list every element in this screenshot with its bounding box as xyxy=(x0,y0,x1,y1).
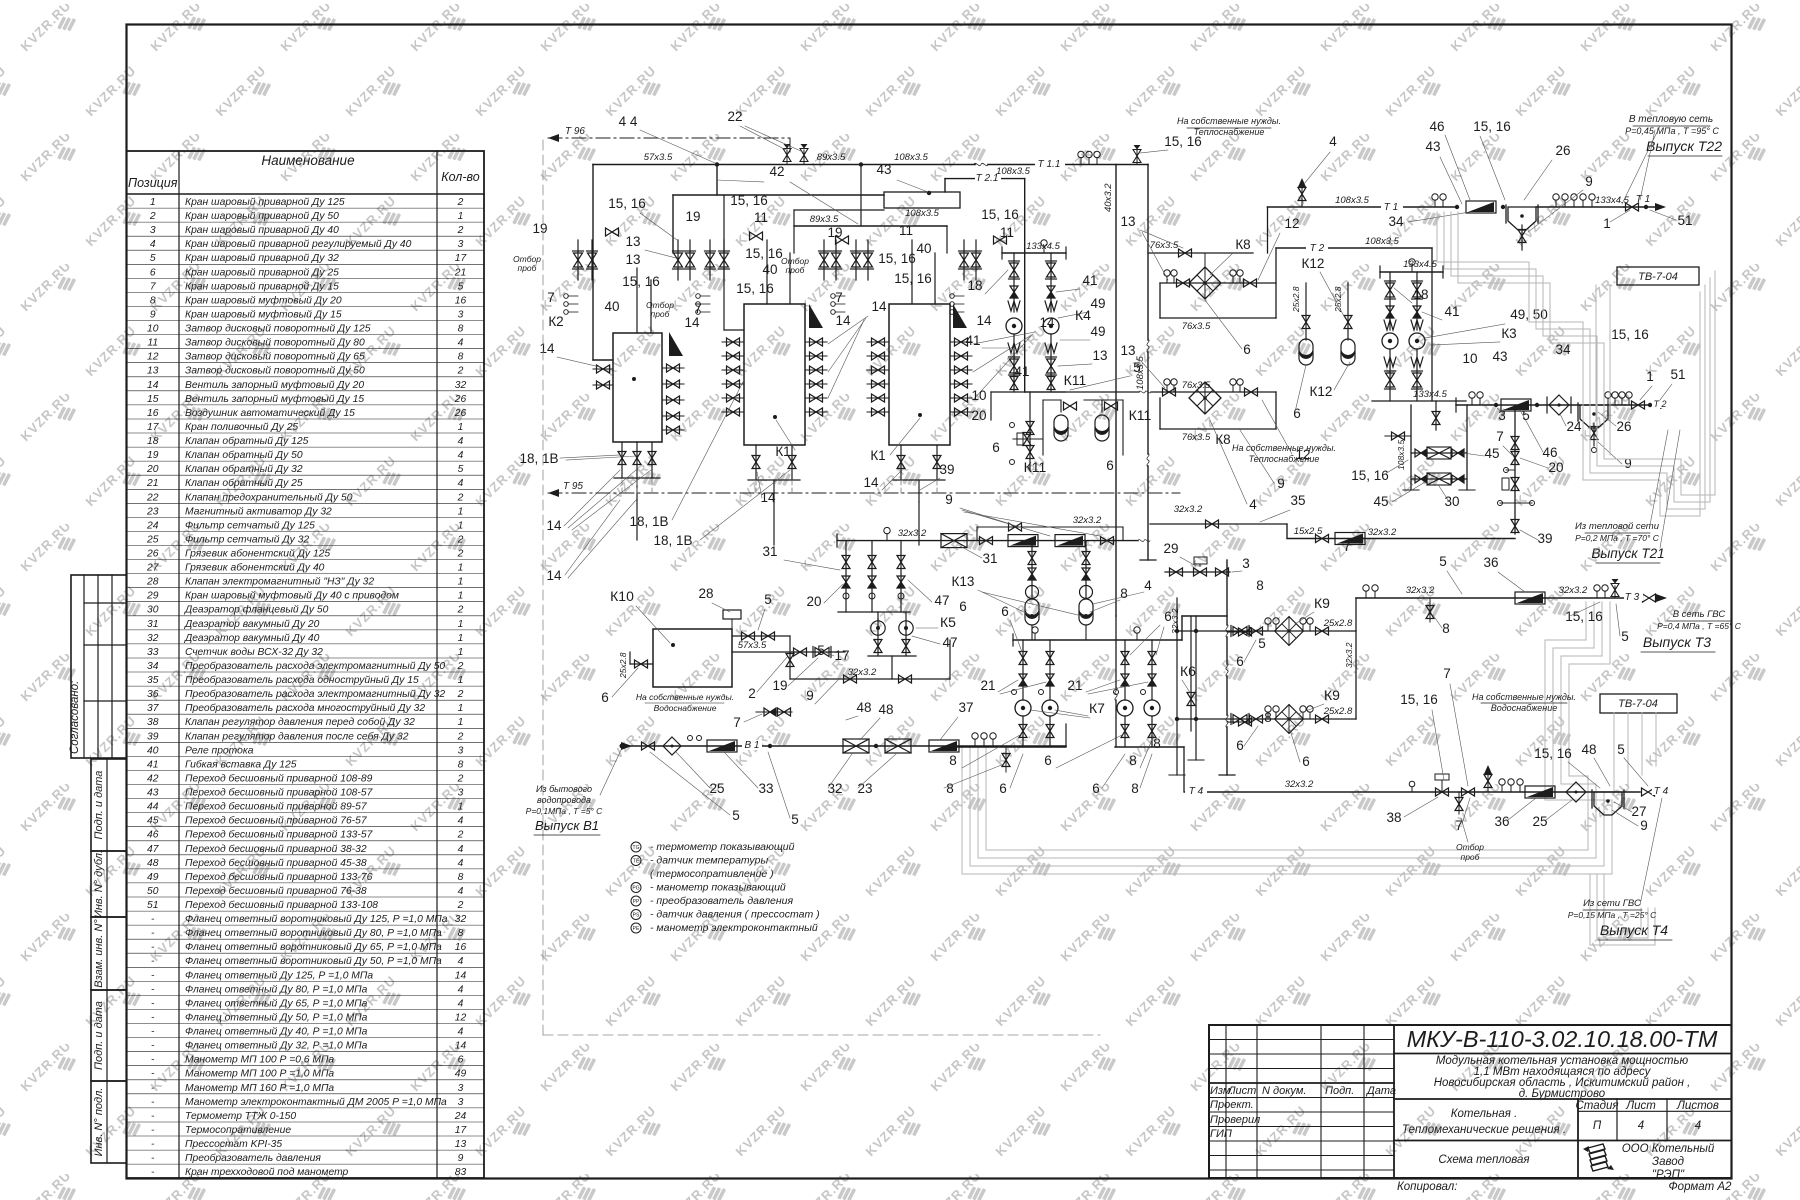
svg-text:Термосопративление: Термосопративление xyxy=(185,1125,291,1136)
svg-text:11: 11 xyxy=(1000,225,1014,240)
svg-text:19: 19 xyxy=(532,221,547,236)
svg-text:4: 4 xyxy=(458,436,464,447)
svg-text:12: 12 xyxy=(1284,216,1299,231)
svg-text:На собственные нужды.: На собственные нужды. xyxy=(1232,443,1336,453)
svg-text:31: 31 xyxy=(982,551,997,566)
svg-text:28: 28 xyxy=(698,586,713,601)
svg-text:К7: К7 xyxy=(1089,700,1105,716)
svg-text:19: 19 xyxy=(685,209,700,224)
svg-text:Манометр электроконтактный ДМ: Манометр электроконтактный ДМ 2005 Р =1,… xyxy=(185,1097,447,1108)
svg-text:5: 5 xyxy=(1258,636,1266,651)
svg-text:4: 4 xyxy=(458,338,464,349)
svg-text:12: 12 xyxy=(455,1013,467,1024)
svg-text:23: 23 xyxy=(146,506,159,517)
svg-text:7: 7 xyxy=(1343,539,1351,554)
svg-text:32х3.2: 32х3.2 xyxy=(1559,585,1588,596)
svg-text:32х3.2: 32х3.2 xyxy=(1285,779,1314,790)
svg-text:15, 16: 15, 16 xyxy=(894,271,932,286)
svg-text:5: 5 xyxy=(1439,554,1447,569)
svg-text:8: 8 xyxy=(458,324,464,335)
svg-text:Реле протока: Реле протока xyxy=(185,745,254,756)
svg-text:Кран шаровый приварной Ду 32: Кран шаровый приварной Ду 32 xyxy=(185,253,339,264)
svg-text:К11: К11 xyxy=(1129,407,1152,423)
svg-text:-: - xyxy=(151,1013,155,1024)
svg-text:15х2.5: 15х2.5 xyxy=(1294,526,1323,537)
svg-text:Манометр МП 100 Р =1,0 МПа: Манометр МП 100 Р =1,0 МПа xyxy=(185,1069,334,1080)
svg-text:ООО Котельный: ООО Котельный xyxy=(1622,1143,1715,1155)
svg-text:Манометр МП 160 Р =1,0 МПа: Манометр МП 160 Р =1,0 МПа xyxy=(185,1083,334,1094)
svg-text:32: 32 xyxy=(455,380,467,391)
svg-text:Клапан электромагнитный "НЗ": Клапан электромагнитный "НЗ" Ду 32 xyxy=(185,577,374,588)
svg-text:8: 8 xyxy=(458,352,464,363)
svg-text:4: 4 xyxy=(1144,578,1152,593)
svg-text:Водоснабжение: Водоснабжение xyxy=(1491,703,1558,713)
svg-text:17: 17 xyxy=(455,1125,468,1136)
svg-text:32х3.2: 32х3.2 xyxy=(848,667,877,678)
svg-text:8: 8 xyxy=(458,759,464,770)
svg-text:д. Бурмистрово: д. Бурмистрово xyxy=(1519,1088,1606,1100)
svg-text:41: 41 xyxy=(1014,364,1029,379)
svg-text:1: 1 xyxy=(458,633,464,644)
svg-text:39: 39 xyxy=(147,731,159,742)
svg-text:Р=0,15 МПа , Т =25° С: Р=0,15 МПа , Т =25° С xyxy=(1568,910,1657,920)
svg-text:14: 14 xyxy=(147,380,159,391)
svg-text:МКУ-В-110-3.02.10.18.00-ТМ: МКУ-В-110-3.02.10.18.00-ТМ xyxy=(1407,1026,1718,1052)
svg-text:26: 26 xyxy=(146,549,159,560)
svg-text:- манометр показывающий: - манометр показывающий xyxy=(650,882,786,894)
svg-text:21: 21 xyxy=(1067,678,1082,693)
svg-text:Р=0,4 МПа , Т =65° С: Р=0,4 МПа , Т =65° С xyxy=(1657,621,1742,631)
svg-text:2: 2 xyxy=(457,830,464,841)
svg-text:1: 1 xyxy=(458,675,464,686)
svg-text:25х2.8: 25х2.8 xyxy=(1333,286,1343,313)
svg-text:Инв. N° подл.: Инв. N° подл. xyxy=(93,1088,105,1157)
svg-text:33: 33 xyxy=(758,781,773,796)
svg-text:PG: PG xyxy=(632,886,639,892)
svg-text:2: 2 xyxy=(457,225,464,236)
svg-text:1: 1 xyxy=(458,520,464,531)
svg-text:К5: К5 xyxy=(940,614,956,630)
svg-text:Переход бесшовный приварной 1: Переход бесшовный приварной 133-57 xyxy=(185,829,374,841)
svg-text:2: 2 xyxy=(457,549,464,560)
svg-text:Воздушник автоматический Ду 15: Воздушник автоматический Ду 15 xyxy=(185,408,355,419)
svg-text:2: 2 xyxy=(457,605,464,616)
svg-text:28: 28 xyxy=(146,577,159,588)
svg-text:25х2.8: 25х2.8 xyxy=(1323,706,1353,717)
svg-text:водопровода: водопровода xyxy=(537,795,591,805)
svg-text:5: 5 xyxy=(458,464,464,475)
svg-text:Преобразователь расхода одност: Преобразователь расхода одноструйный Ду … xyxy=(185,674,419,686)
svg-text:Манометр МП 100 Р =0,6 МПа: Манометр МП 100 Р =0,6 МПа xyxy=(185,1055,334,1066)
svg-text:18: 18 xyxy=(147,436,159,447)
svg-text:18: 18 xyxy=(1413,287,1428,302)
svg-text:24: 24 xyxy=(454,1111,467,1122)
svg-text:4: 4 xyxy=(458,858,464,869)
svg-text:Т 1: Т 1 xyxy=(1384,202,1398,213)
svg-text:5: 5 xyxy=(764,592,772,607)
svg-text:проб: проб xyxy=(651,309,671,319)
svg-text:К13: К13 xyxy=(952,574,975,589)
svg-text:4: 4 xyxy=(458,1027,464,1038)
svg-text:Клапан обратный Ду 25: Клапан обратный Ду 25 xyxy=(185,477,303,489)
svg-text:-: - xyxy=(151,942,155,953)
svg-text:26: 26 xyxy=(1555,143,1570,158)
svg-text:проб: проб xyxy=(1461,852,1481,862)
svg-text:Переход бесшовный приварной 3: Переход бесшовный приварной 38-32 xyxy=(185,843,367,855)
svg-text:41: 41 xyxy=(1444,304,1459,319)
svg-text:Преобразователь расхода многос: Преобразователь расхода многоструйный Ду… xyxy=(185,702,425,714)
svg-text:Фланец ответный Ду 80, Р =1,0: Фланец ответный Ду 80, Р =1,0 МПа xyxy=(185,984,368,995)
svg-text:6: 6 xyxy=(1164,609,1172,624)
svg-text:76х3.5: 76х3.5 xyxy=(1182,432,1211,443)
svg-text:43: 43 xyxy=(1492,349,1507,364)
svg-text:Фланец ответный воротниковый Д: Фланец ответный воротниковый Ду 125, Р =… xyxy=(185,914,448,925)
svg-text:-: - xyxy=(151,984,155,995)
svg-text:32х3.2: 32х3.2 xyxy=(1406,585,1435,596)
svg-text:43: 43 xyxy=(876,162,891,177)
svg-text:К10: К10 xyxy=(610,588,634,604)
svg-text:1: 1 xyxy=(458,717,464,728)
svg-text:ТЕ: ТЕ xyxy=(633,859,640,865)
svg-text:49: 49 xyxy=(1090,296,1105,311)
svg-text:31: 31 xyxy=(762,544,777,559)
svg-text:39: 39 xyxy=(1537,531,1552,546)
svg-text:Фланец ответный Ду 65, Р =1,0: Фланец ответный Ду 65, Р =1,0 МПа xyxy=(185,998,368,1009)
svg-text:Вентиль запорный муфтовый Ду: Вентиль запорный муфтовый Ду 20 xyxy=(185,379,364,391)
svg-text:14: 14 xyxy=(835,313,851,328)
svg-text:48: 48 xyxy=(147,858,159,869)
svg-text:6: 6 xyxy=(992,440,1000,455)
svg-text:1: 1 xyxy=(1603,216,1611,231)
svg-text:Из сети ГВС: Из сети ГВС xyxy=(1583,898,1641,909)
svg-text:Т 2: Т 2 xyxy=(1310,243,1325,254)
svg-text:12: 12 xyxy=(147,352,159,363)
svg-text:11: 11 xyxy=(899,223,913,238)
svg-text:Фланец ответный воротниковый Д: Фланец ответный воротниковый Ду 80, Р =1… xyxy=(185,928,442,939)
svg-text:32: 32 xyxy=(147,633,159,644)
svg-text:15, 16: 15, 16 xyxy=(1351,468,1389,483)
svg-text:-: - xyxy=(151,970,155,981)
svg-text:ТВ-7-04: ТВ-7-04 xyxy=(1638,271,1678,283)
svg-text:Котельная .: Котельная . xyxy=(1451,1108,1518,1120)
svg-text:Схема тепловая: Схема тепловая xyxy=(1438,1154,1529,1166)
svg-text:76х3.5: 76х3.5 xyxy=(1150,240,1179,251)
svg-text:Согласовано:: Согласовано: xyxy=(69,681,81,754)
svg-text:7: 7 xyxy=(835,290,843,305)
svg-text:46: 46 xyxy=(1542,445,1557,460)
svg-text:9: 9 xyxy=(806,688,814,703)
svg-text:14: 14 xyxy=(863,475,879,490)
svg-text:9: 9 xyxy=(1640,818,1648,833)
svg-text:1: 1 xyxy=(458,577,464,588)
svg-text:Кол-во: Кол-во xyxy=(441,170,480,184)
svg-text:Клапан предохранительный Ду 50: Клапан предохранительный Ду 50 xyxy=(185,492,353,503)
svg-text:42: 42 xyxy=(769,164,784,179)
svg-text:Р=0,45 МПа , Т =95° С: Р=0,45 МПа , Т =95° С xyxy=(1625,126,1719,136)
svg-text:57х3.5: 57х3.5 xyxy=(644,152,673,163)
svg-text:108х3.5: 108х3.5 xyxy=(1365,236,1400,247)
svg-text:проб: проб xyxy=(786,265,806,275)
svg-text:8: 8 xyxy=(949,753,957,768)
svg-text:23: 23 xyxy=(857,781,872,796)
svg-text:5: 5 xyxy=(150,253,156,264)
svg-text:15, 16: 15, 16 xyxy=(608,196,646,211)
svg-text:10: 10 xyxy=(971,388,986,403)
svg-text:15, 16: 15, 16 xyxy=(1473,119,1511,134)
svg-text:Из бытового: Из бытового xyxy=(536,784,592,794)
svg-text:Теплоснабжение: Теплоснабжение xyxy=(1249,454,1320,464)
svg-text:36: 36 xyxy=(1494,814,1509,829)
svg-text:76х3.5: 76х3.5 xyxy=(1182,321,1211,332)
svg-text:45: 45 xyxy=(1484,446,1499,461)
svg-text:18, 1В: 18, 1В xyxy=(519,451,558,466)
svg-text:1: 1 xyxy=(458,802,464,813)
svg-text:25: 25 xyxy=(1532,814,1547,829)
svg-text:Магнитный активатор Ду 32: Магнитный активатор Ду 32 xyxy=(185,506,332,517)
svg-text:-: - xyxy=(151,1069,155,1080)
svg-text:3: 3 xyxy=(458,788,464,799)
svg-text:76х3.5: 76х3.5 xyxy=(1182,380,1211,391)
svg-text:17: 17 xyxy=(834,648,849,663)
svg-text:16: 16 xyxy=(455,942,467,953)
svg-text:-: - xyxy=(151,1139,155,1150)
svg-text:Т 95: Т 95 xyxy=(563,481,583,492)
svg-text:Деаэратор вакумный Ду 20: Деаэратор вакумный Ду 20 xyxy=(184,619,320,630)
svg-text:8: 8 xyxy=(1256,578,1264,593)
svg-text:5: 5 xyxy=(1133,360,1141,375)
svg-text:К1: К1 xyxy=(775,444,790,459)
svg-text:133х4.5: 133х4.5 xyxy=(1595,195,1630,206)
svg-text:Клапан обратный Ду 50: Клапан обратный Ду 50 xyxy=(185,449,303,461)
svg-text:- датчик температуры: - датчик температуры xyxy=(650,855,769,867)
svg-text:24: 24 xyxy=(1566,419,1582,434)
svg-text:9: 9 xyxy=(1624,456,1632,471)
svg-text:Выпуск Т22: Выпуск Т22 xyxy=(1646,138,1722,154)
svg-text:13: 13 xyxy=(455,1139,467,1150)
svg-text:15, 16: 15, 16 xyxy=(730,193,768,208)
svg-text:51: 51 xyxy=(1677,213,1692,228)
svg-text:2: 2 xyxy=(457,661,464,672)
svg-text:50: 50 xyxy=(147,886,159,897)
svg-text:21: 21 xyxy=(454,267,466,278)
svg-text:32х3.2: 32х3.2 xyxy=(898,528,927,539)
svg-text:Кран шаровый приварной Ду 15: Кран шаровый приварной Ду 15 xyxy=(185,281,339,292)
svg-text:2: 2 xyxy=(457,774,464,785)
svg-text:7: 7 xyxy=(733,715,741,730)
svg-text:39: 39 xyxy=(939,462,954,477)
svg-text:29: 29 xyxy=(1163,541,1178,556)
svg-text:Фланец ответный воротниковый Д: Фланец ответный воротниковый Ду 50, Р =1… xyxy=(185,956,442,967)
svg-text:6: 6 xyxy=(1001,604,1009,619)
svg-text:Завод: Завод xyxy=(1652,1156,1684,1168)
svg-text:Фильтр сетчатый Ду 32: Фильтр сетчатый Ду 32 xyxy=(185,534,309,545)
svg-text:40: 40 xyxy=(147,745,159,756)
svg-text:30: 30 xyxy=(147,605,159,616)
svg-text:14: 14 xyxy=(546,518,562,533)
svg-text:20: 20 xyxy=(971,408,986,423)
svg-text:Кран шаровый приварной Ду 40: Кран шаровый приварной Ду 40 xyxy=(185,225,339,236)
svg-text:1: 1 xyxy=(458,422,464,433)
svg-text:Взам. инв. N°: Взам. инв. N° xyxy=(93,919,105,988)
svg-text:ТG: ТG xyxy=(633,845,640,851)
svg-text:15: 15 xyxy=(147,394,159,405)
svg-text:14: 14 xyxy=(684,315,700,330)
svg-text:К12: К12 xyxy=(1302,256,1325,271)
svg-text:6: 6 xyxy=(1106,458,1114,473)
svg-text:14: 14 xyxy=(1039,315,1055,330)
svg-text:15, 16: 15, 16 xyxy=(1400,692,1438,707)
svg-text:4: 4 xyxy=(458,844,464,855)
svg-text:5: 5 xyxy=(732,808,740,823)
svg-text:П: П xyxy=(1593,1120,1602,1132)
svg-text:Т 2.1: Т 2.1 xyxy=(976,173,999,184)
svg-text:21: 21 xyxy=(980,678,995,693)
svg-text:83: 83 xyxy=(455,1167,467,1178)
svg-text:-: - xyxy=(151,1153,155,1164)
svg-text:9: 9 xyxy=(458,1153,464,1164)
svg-text:Формат А2: Формат А2 xyxy=(1669,1181,1733,1193)
svg-text:6: 6 xyxy=(1236,738,1244,753)
svg-text:8: 8 xyxy=(1442,621,1450,636)
svg-text:К11: К11 xyxy=(1064,372,1087,388)
svg-text:Прессостат KPI-35: Прессостат KPI-35 xyxy=(185,1139,282,1150)
svg-text:Переход бесшовный приварной 7: Переход бесшовный приварной 76-57 xyxy=(185,815,368,827)
svg-text:5: 5 xyxy=(1621,629,1629,644)
svg-text:48: 48 xyxy=(878,702,893,717)
svg-text:32: 32 xyxy=(455,914,467,925)
svg-text:Кран шаровый приварной Ду 50: Кран шаровый приварной Ду 50 xyxy=(185,211,339,222)
svg-text:Отбор: Отбор xyxy=(1456,842,1484,852)
svg-text:- преобразователь давления: - преобразователь давления xyxy=(650,895,794,907)
svg-text:Позиция: Позиция xyxy=(128,176,178,190)
svg-text:-: - xyxy=(151,956,155,967)
svg-text:2: 2 xyxy=(457,689,464,700)
svg-text:26: 26 xyxy=(454,408,467,419)
svg-text:24: 24 xyxy=(146,520,159,531)
svg-text:Грязевик абонентский Ду 40: Грязевик абонентский Ду 40 xyxy=(185,562,325,574)
svg-text:-: - xyxy=(151,1055,155,1066)
svg-text:38: 38 xyxy=(147,717,159,728)
svg-text:Листов: Листов xyxy=(1676,1100,1719,1112)
svg-text:- манометр электроконтактный: - манометр электроконтактный xyxy=(650,922,818,934)
svg-text:5: 5 xyxy=(817,643,825,658)
svg-text:Выпуск Т3: Выпуск Т3 xyxy=(1643,634,1711,650)
svg-text:22: 22 xyxy=(727,109,742,124)
svg-text:К8: К8 xyxy=(1235,237,1250,252)
svg-text:4: 4 xyxy=(458,984,464,995)
svg-text:Т 4: Т 4 xyxy=(1654,786,1669,797)
svg-text:6: 6 xyxy=(1243,342,1251,357)
svg-text:15, 16: 15, 16 xyxy=(878,251,916,266)
svg-text:21: 21 xyxy=(146,478,158,489)
svg-text:К12: К12 xyxy=(1310,384,1333,399)
svg-text:Инв. N° дубл.: Инв. N° дубл. xyxy=(93,850,105,918)
svg-text:1: 1 xyxy=(458,647,464,658)
svg-text:43: 43 xyxy=(147,788,159,799)
svg-text:19: 19 xyxy=(827,225,842,240)
svg-text:Наименование: Наименование xyxy=(261,153,354,168)
svg-text:3: 3 xyxy=(458,1083,464,1094)
svg-text:-: - xyxy=(151,928,155,939)
svg-text:К9: К9 xyxy=(1324,687,1340,703)
svg-text:11: 11 xyxy=(147,338,158,349)
svg-text:3: 3 xyxy=(458,239,464,250)
svg-text:15, 16: 15, 16 xyxy=(745,246,783,261)
svg-text:Переход бесшовный приварной 4: Переход бесшовный приварной 45-38 xyxy=(185,857,367,869)
svg-text:Счетчик воды ВСХ-32 Ду 32: Счетчик воды ВСХ-32 Ду 32 xyxy=(185,647,323,658)
svg-text:35: 35 xyxy=(1290,493,1305,508)
svg-text:-: - xyxy=(151,1111,155,1122)
svg-text:42: 42 xyxy=(147,774,159,785)
svg-text:Дата: Дата xyxy=(1365,1085,1396,1097)
svg-text:1: 1 xyxy=(458,591,464,602)
svg-text:49: 49 xyxy=(455,1069,467,1080)
svg-text:6: 6 xyxy=(601,690,609,705)
svg-text:- термометр показывающий: - термометр показывающий xyxy=(650,841,795,853)
svg-text:Проверил: Проверил xyxy=(1210,1114,1260,1126)
svg-text:"РЭП": "РЭП" xyxy=(1652,1169,1685,1181)
svg-text:14: 14 xyxy=(455,970,467,981)
svg-text:4 4: 4 4 xyxy=(619,114,638,129)
svg-text:Кран шаровый приварной Ду 125: Кран шаровый приварной Ду 125 xyxy=(185,197,345,208)
svg-text:Подп.: Подп. xyxy=(1325,1085,1354,1097)
svg-text:18, 1В: 18, 1В xyxy=(653,533,692,548)
svg-text:К4: К4 xyxy=(1075,307,1091,323)
svg-text:6: 6 xyxy=(1293,406,1301,421)
svg-text:41: 41 xyxy=(1082,273,1097,288)
svg-text:3: 3 xyxy=(458,745,464,756)
svg-text:20: 20 xyxy=(806,594,821,609)
svg-text:Преобразователь расхода электр: Преобразователь расхода электромагнитный… xyxy=(185,688,445,700)
svg-text:Выпуск В1: Выпуск В1 xyxy=(535,818,599,833)
svg-text:25х2.8: 25х2.8 xyxy=(1291,286,1301,313)
svg-text:8: 8 xyxy=(150,295,156,306)
svg-text:4: 4 xyxy=(1638,1120,1644,1132)
svg-text:9: 9 xyxy=(945,492,953,507)
svg-text:-: - xyxy=(151,1125,155,1136)
svg-text:14: 14 xyxy=(455,1041,467,1052)
svg-text:14: 14 xyxy=(539,341,555,356)
svg-text:108х3.5: 108х3.5 xyxy=(905,208,940,219)
svg-text:PР: PР xyxy=(633,899,640,905)
svg-text:36: 36 xyxy=(1483,555,1498,570)
svg-text:Лист: Лист xyxy=(1227,1085,1256,1097)
svg-text:Преобразователь расхода электр: Преобразователь расхода электромагнитный… xyxy=(185,660,445,672)
svg-text:35: 35 xyxy=(147,675,159,686)
svg-text:1: 1 xyxy=(1646,369,1654,384)
svg-text:К2: К2 xyxy=(548,314,563,329)
svg-text:Переход бесшовный приварной 1: Переход бесшовный приварной 108-89 xyxy=(185,773,373,785)
svg-text:Теплоснабжение: Теплоснабжение xyxy=(1194,127,1265,137)
svg-text:2: 2 xyxy=(457,900,464,911)
svg-text:2: 2 xyxy=(457,534,464,545)
svg-text:38: 38 xyxy=(1386,810,1401,825)
svg-text:89х3.5: 89х3.5 xyxy=(817,152,846,163)
svg-text:47: 47 xyxy=(147,844,160,855)
svg-text:57х3.5: 57х3.5 xyxy=(738,640,767,651)
svg-text:7: 7 xyxy=(1496,429,1504,444)
svg-text:14: 14 xyxy=(546,568,562,583)
svg-text:Кран шаровый приварной регулир: Кран шаровый приварной регулируемый Ду 4… xyxy=(185,239,412,250)
svg-text:-: - xyxy=(151,1041,155,1052)
svg-text:37: 37 xyxy=(958,700,973,715)
svg-text:40: 40 xyxy=(762,262,777,277)
svg-text:5: 5 xyxy=(1522,408,1530,423)
svg-text:48: 48 xyxy=(856,700,871,715)
svg-text:Клапан регулятор давления пере: Клапан регулятор давления перед собой Ду… xyxy=(185,716,415,728)
svg-text:В 1: В 1 xyxy=(744,740,759,751)
svg-text:6: 6 xyxy=(959,599,967,614)
